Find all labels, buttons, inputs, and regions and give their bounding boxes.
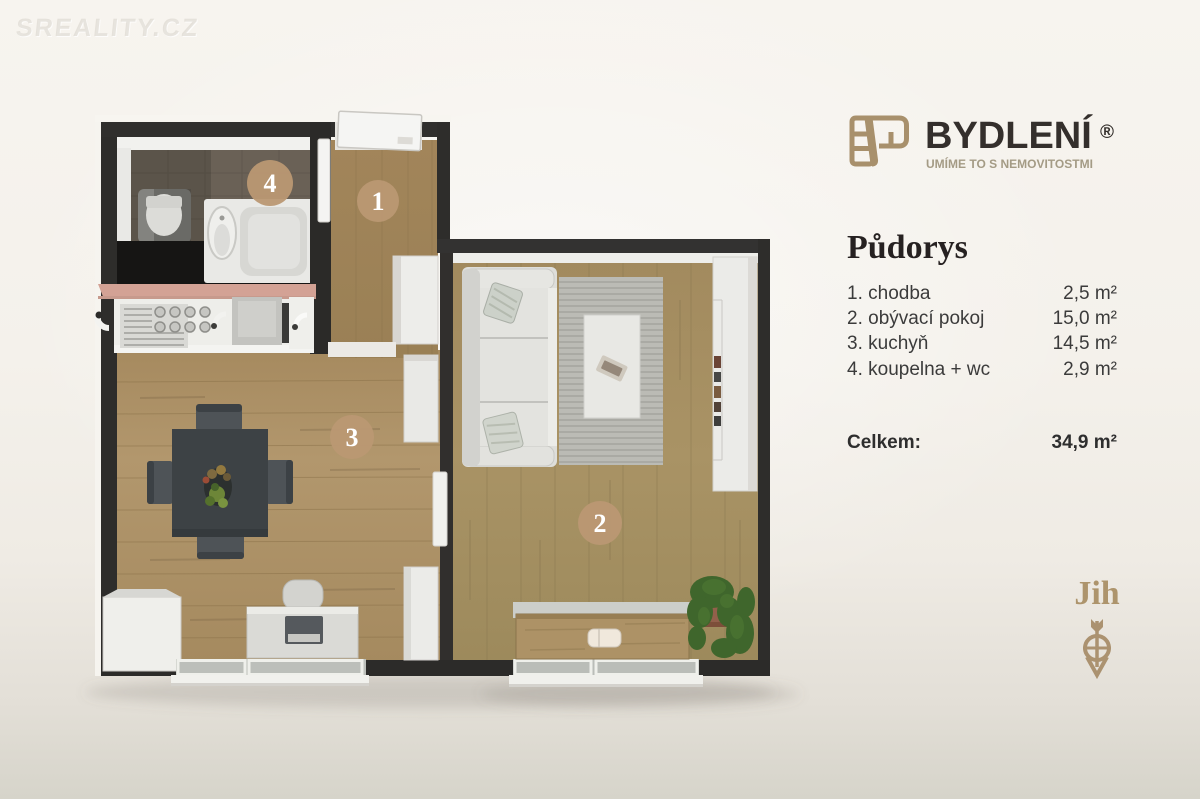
svg-text:4: 4 xyxy=(264,169,277,198)
svg-text:2: 2 xyxy=(594,509,607,538)
svg-text:3: 3 xyxy=(346,423,359,452)
svg-text:1: 1 xyxy=(372,187,385,216)
